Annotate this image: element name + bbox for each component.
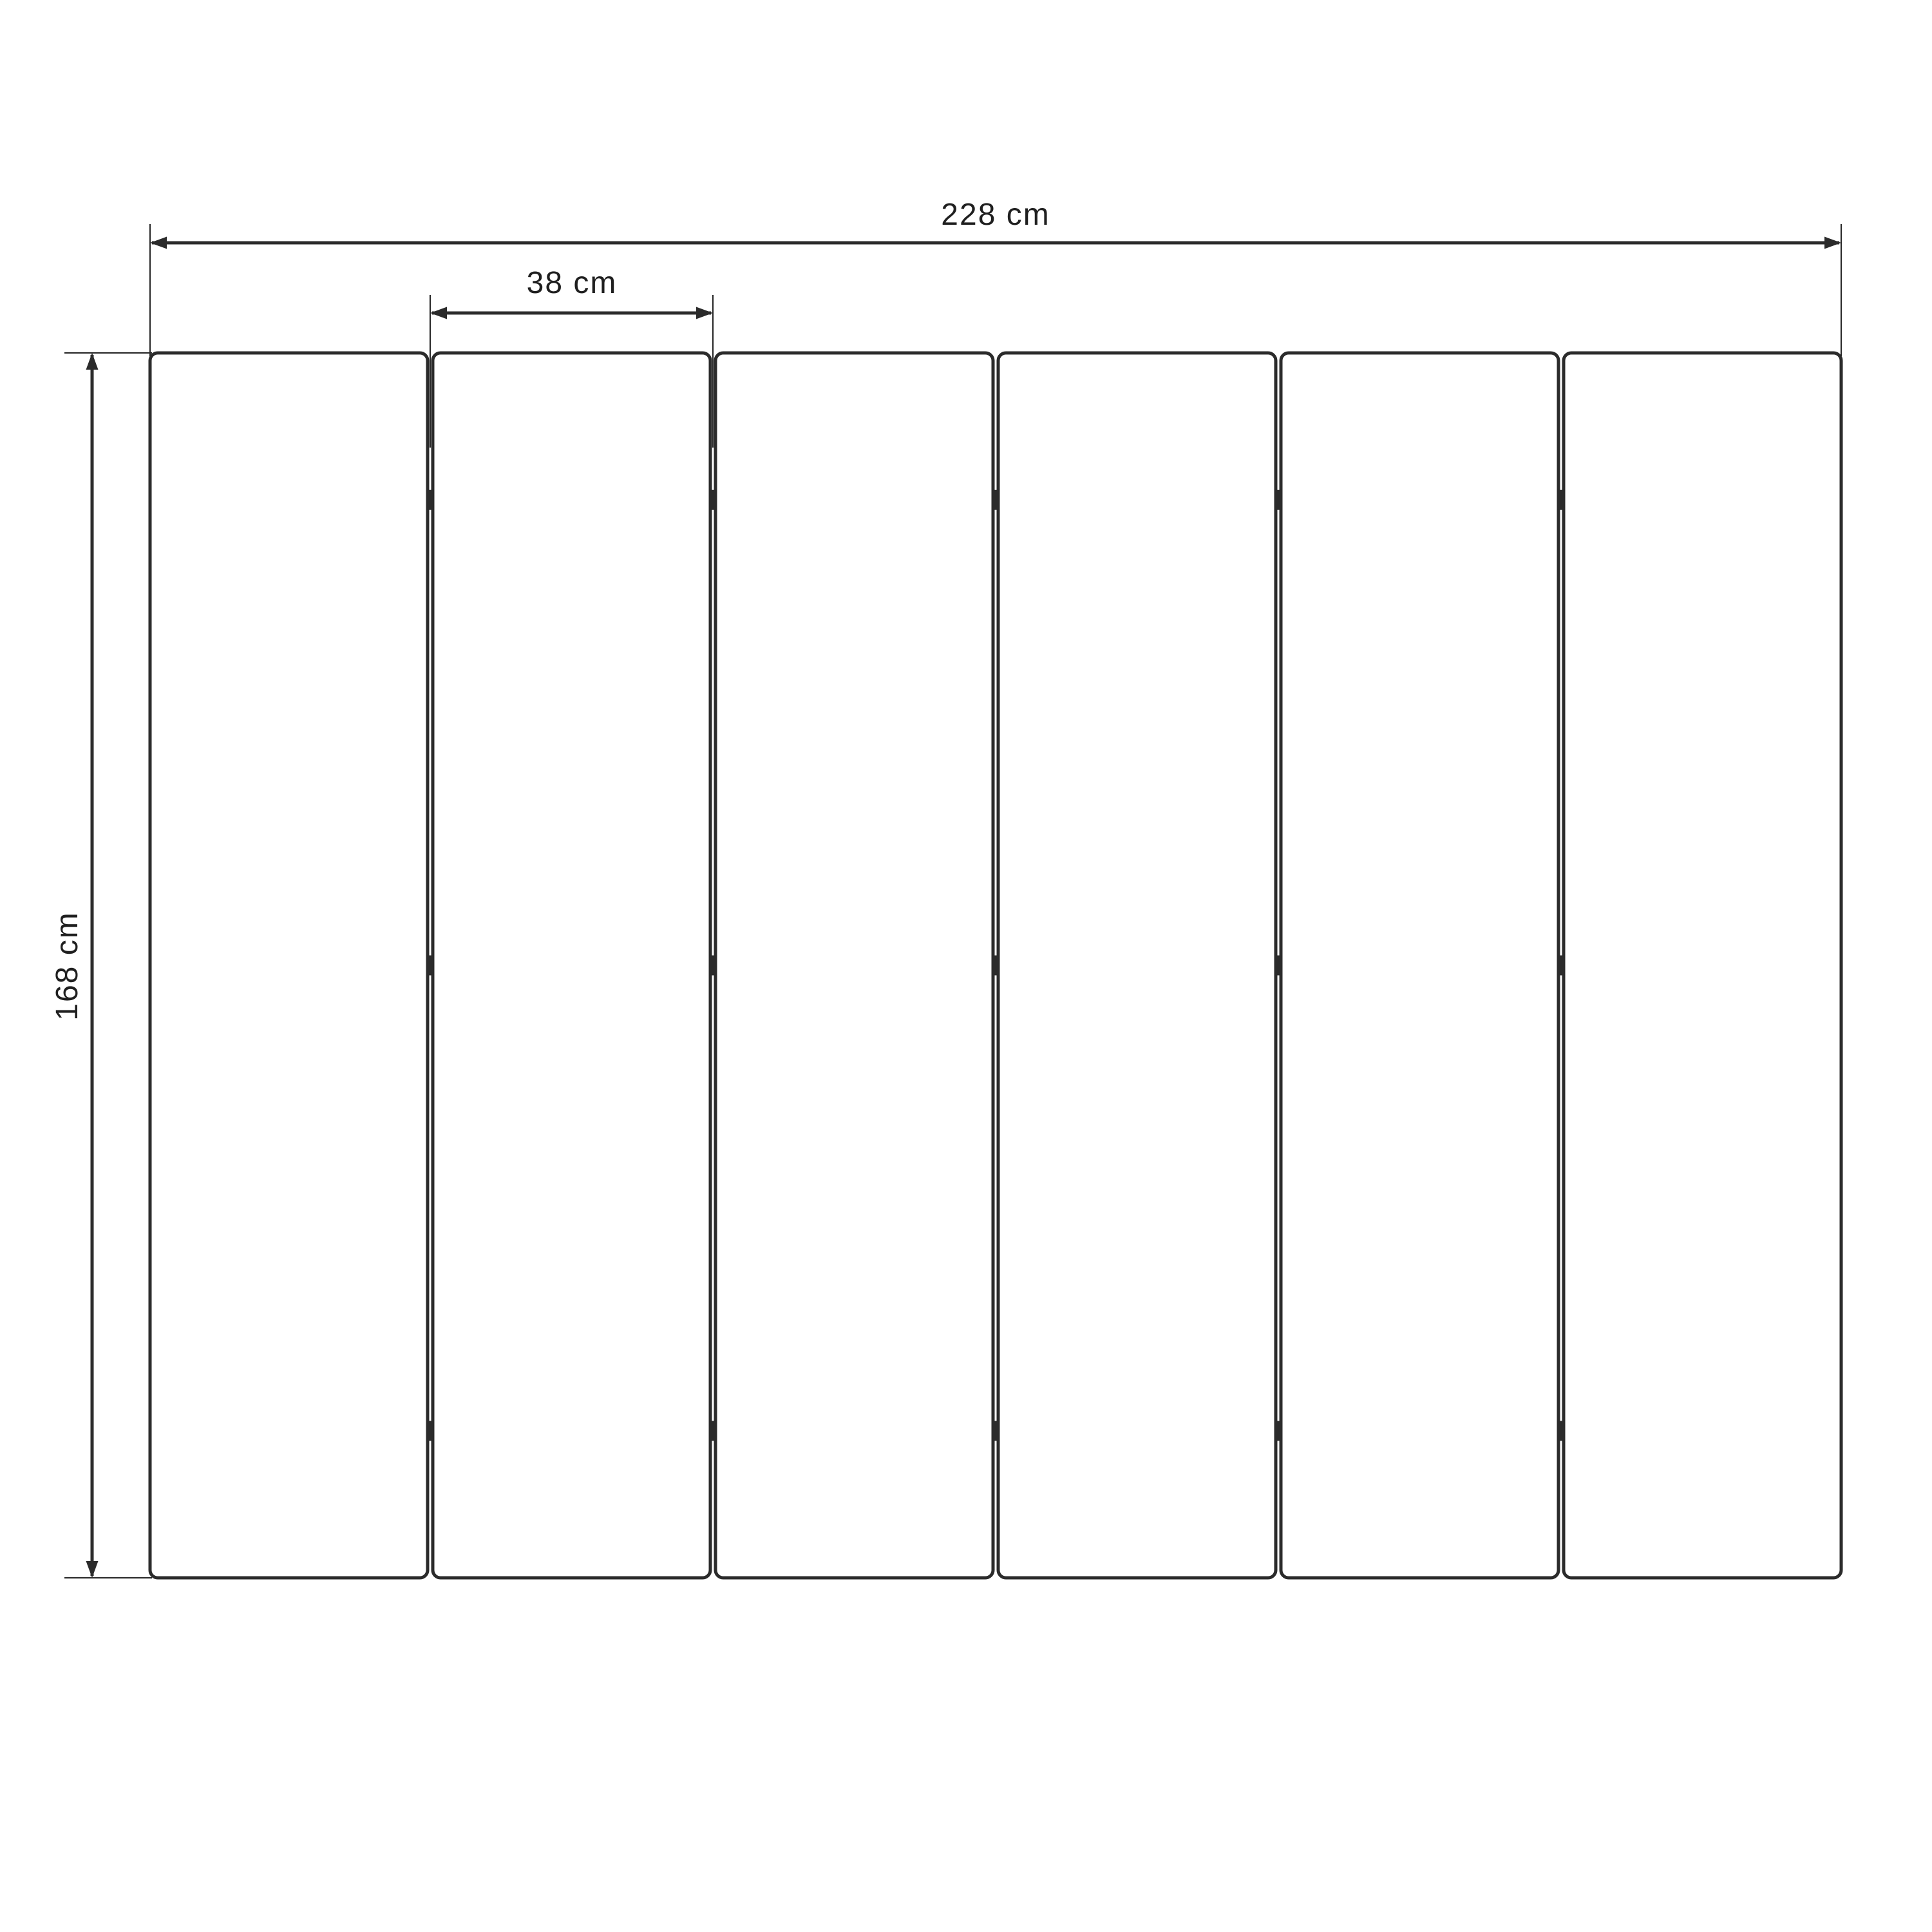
hinge-mark [709,490,717,510]
total-width-label: 228 cm [941,198,1050,232]
panel [715,353,993,1578]
panel [1281,353,1558,1578]
hinge-mark [709,956,717,976]
hinge-mark [1274,956,1282,976]
panel-width-label: 38 cm [527,266,618,300]
hinge-mark [1557,490,1565,510]
hinge-mark [426,1421,434,1441]
drawing-canvas: 228 cm 38 cm 168 cm [0,0,1932,1932]
hinge-mark [426,490,434,510]
panel [433,353,710,1578]
technical-drawing-page: 228 cm 38 cm 168 cm [0,0,1932,1932]
hinge-mark [992,956,999,976]
hinge-mark [992,490,999,510]
height-label: 168 cm [50,911,84,1020]
arrowhead [150,237,167,249]
arrowhead [86,353,99,370]
arrowhead [696,307,713,319]
arrowhead [1824,237,1841,249]
hinge-mark [709,1421,717,1441]
arrowhead [86,1561,99,1578]
panel [998,353,1276,1578]
hinge-mark [1274,490,1282,510]
hinge-mark [1557,1421,1565,1441]
panel [150,353,428,1578]
hinge-mark [992,1421,999,1441]
hinge-mark [1557,956,1565,976]
hinge-mark [426,956,434,976]
hinge-mark [1274,1421,1282,1441]
panel [1564,353,1841,1578]
arrowhead [430,307,447,319]
